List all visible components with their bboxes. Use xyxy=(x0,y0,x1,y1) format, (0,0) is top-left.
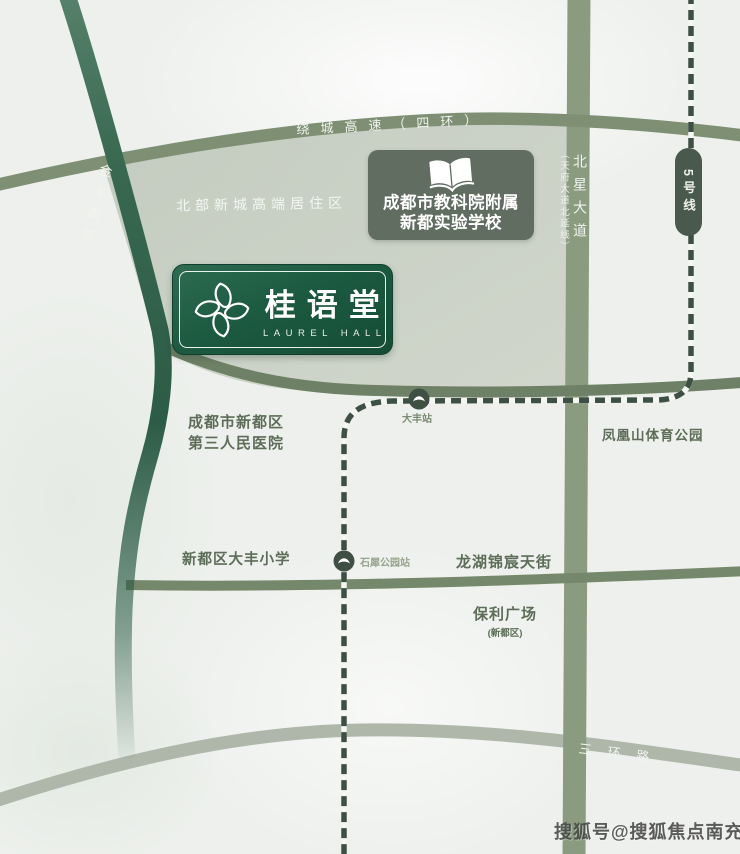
metro-line5-badge: 5号线 xyxy=(675,148,702,236)
shixi-station-label: 石犀公园站 xyxy=(360,554,410,569)
third-ring-road xyxy=(0,730,740,802)
beixing-avenue-name: 北星大道 xyxy=(570,154,590,246)
hospital-label: 成都市新都区 第三人民医院 xyxy=(188,412,284,454)
hospital-line1: 成都市新都区 xyxy=(188,412,284,433)
book-icon xyxy=(425,157,477,193)
watermark-text: 搜狐号@搜狐焦点南充站 xyxy=(554,818,740,844)
project-logo-text: 桂语堂 LAUREL HALL xyxy=(263,280,382,339)
dafeng-station-label: 大丰站 xyxy=(402,410,432,425)
road-b xyxy=(126,571,740,586)
beixing-avenue-road xyxy=(574,0,579,854)
residential-zone-label: 北部新城高端居住区 xyxy=(176,193,347,216)
longfor-mall-label: 龙湖锦宸天街 xyxy=(456,551,552,572)
primary-school-label: 新都区大丰小学 xyxy=(182,548,291,569)
project-name-cn: 桂语堂 xyxy=(265,280,391,325)
project-logo: 桂语堂 LAUREL HALL xyxy=(172,264,393,355)
metro-line5-badge-label: 5号线 xyxy=(679,169,698,216)
beixing-avenue-label: 北星大道 （天府大道北延线） xyxy=(562,147,590,253)
dafeng-station-icon xyxy=(409,389,430,410)
poly-plaza-subname: (新都区) xyxy=(462,625,548,639)
school-name-line1: 成都市教科院附属 xyxy=(383,193,519,213)
location-map: 绕城高速（四环） 金丰高架 北星大道 （天府大道北延线） 5号线 北部新城高端居… xyxy=(0,0,740,854)
jinfeng-viaduct-road xyxy=(66,0,163,758)
poly-plaza-label: 保利广场 (新都区) xyxy=(462,603,548,639)
hospital-line2: 第三人民医院 xyxy=(188,433,284,454)
phoenix-park-label: 凤凰山体育公园 xyxy=(602,424,704,444)
osmanthus-flower-icon xyxy=(193,281,251,339)
school-callout: 成都市教科院附属 新都实验学校 xyxy=(368,150,534,240)
school-name-line2: 新都实验学校 xyxy=(400,213,502,233)
poly-plaza-name: 保利广场 xyxy=(462,603,548,624)
beixing-avenue-subname: （天府大道北延线） xyxy=(556,149,570,253)
project-name-en: LAUREL HALL xyxy=(263,328,387,339)
shixi-station-icon xyxy=(334,551,355,572)
